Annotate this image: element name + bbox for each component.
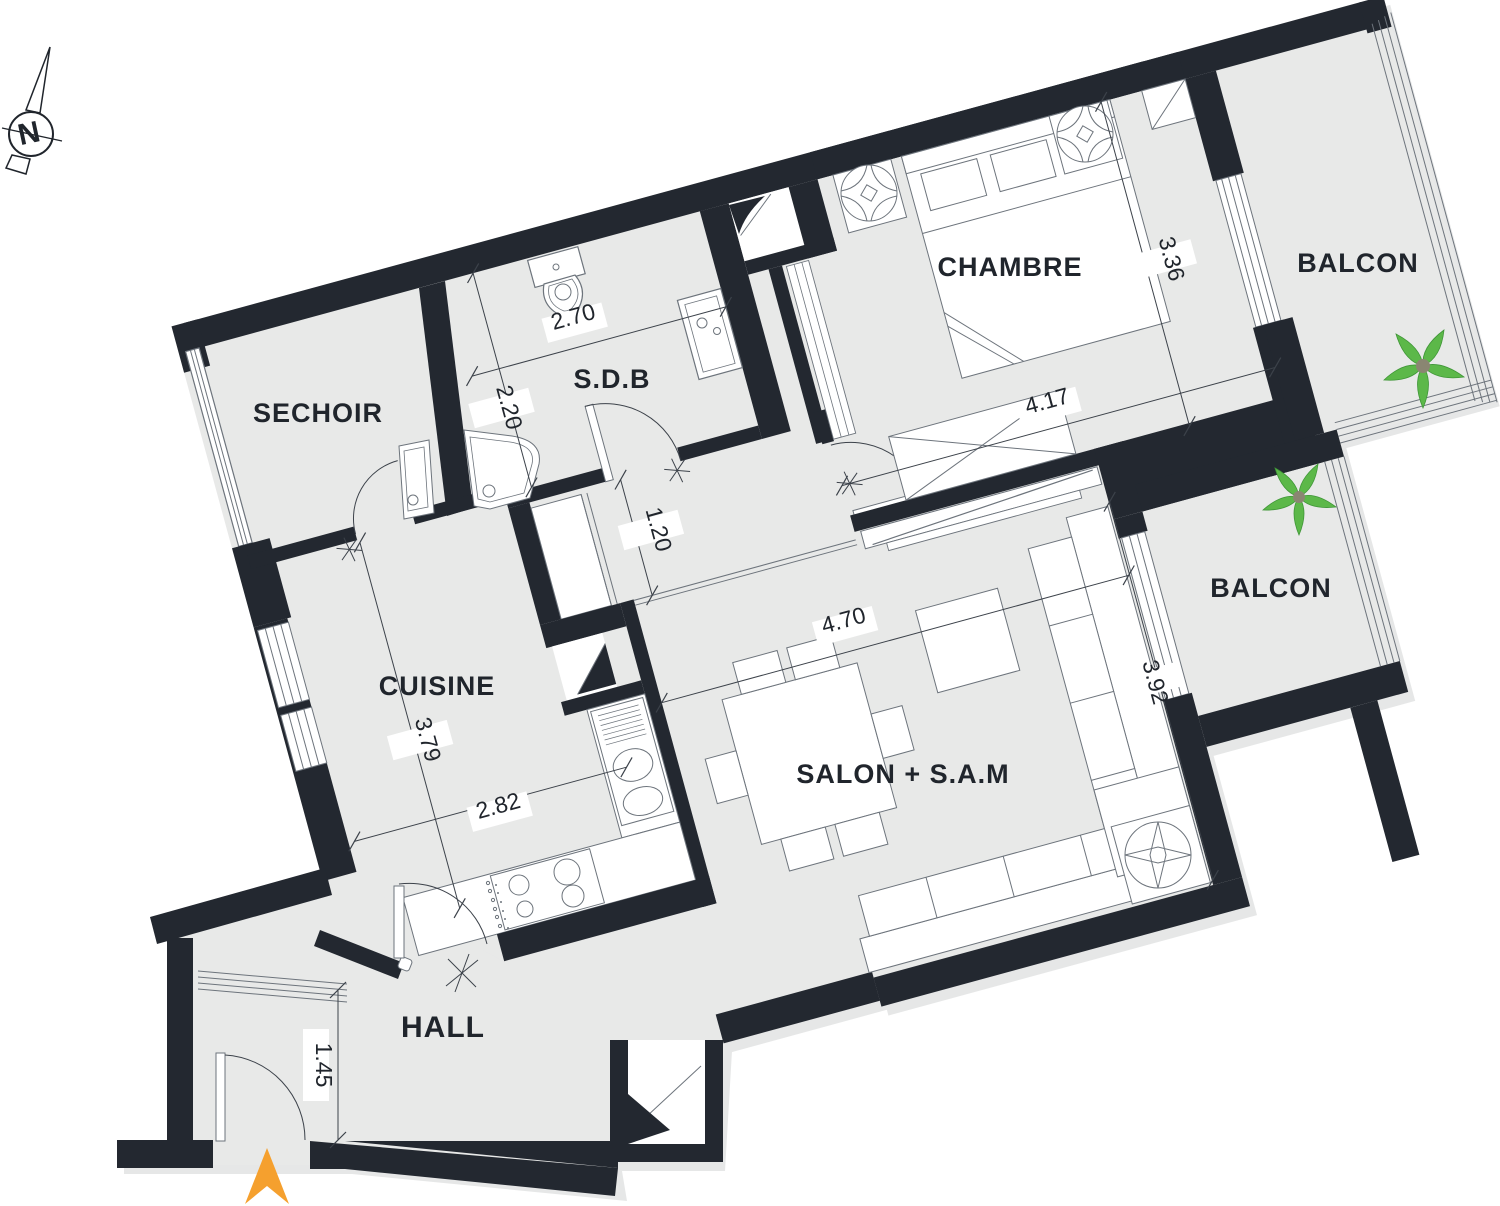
svg-text:CHAMBRE: CHAMBRE (938, 252, 1083, 282)
svg-text:BALCON: BALCON (1297, 248, 1419, 278)
svg-text:BALCON: BALCON (1210, 573, 1332, 603)
svg-text:SALON + S.A.M: SALON + S.A.M (796, 759, 1009, 789)
svg-text:1.45: 1.45 (311, 1043, 337, 1088)
svg-text:CUISINE: CUISINE (379, 671, 496, 701)
svg-text:HALL: HALL (401, 1011, 485, 1044)
svg-text:S.D.B: S.D.B (573, 364, 650, 394)
svg-text:SECHOIR: SECHOIR (253, 398, 383, 428)
